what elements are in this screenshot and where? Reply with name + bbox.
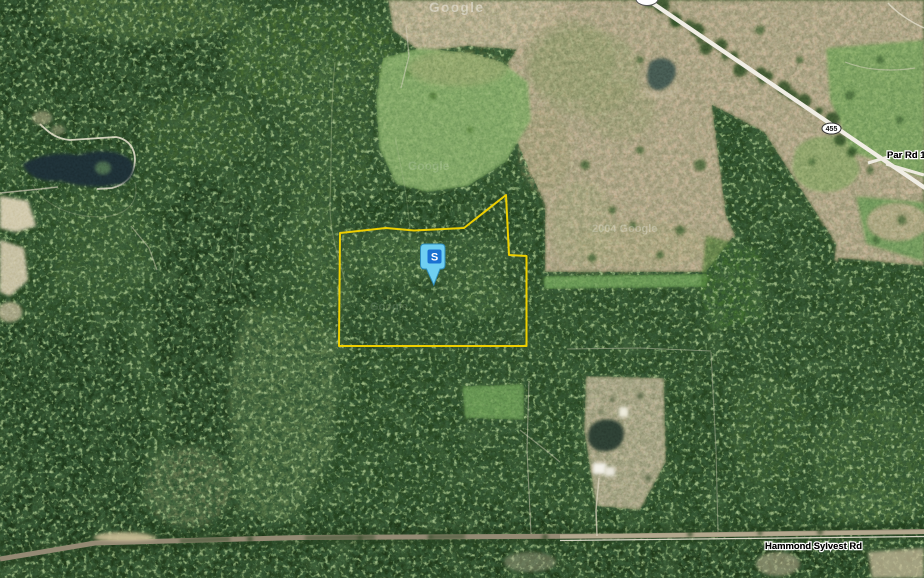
svg-text:S: S — [431, 252, 438, 264]
svg-text:Google: Google — [429, 0, 485, 15]
svg-text:Par Rd 1: Par Rd 1 — [887, 150, 924, 161]
svg-text:Hammond Sylvest Rd: Hammond Sylvest Rd — [765, 541, 862, 552]
svg-text:Google: Google — [370, 301, 408, 313]
svg-text:2004 Google: 2004 Google — [592, 223, 657, 235]
svg-text:Google: Google — [408, 159, 450, 173]
svg-text:455: 455 — [826, 126, 838, 133]
